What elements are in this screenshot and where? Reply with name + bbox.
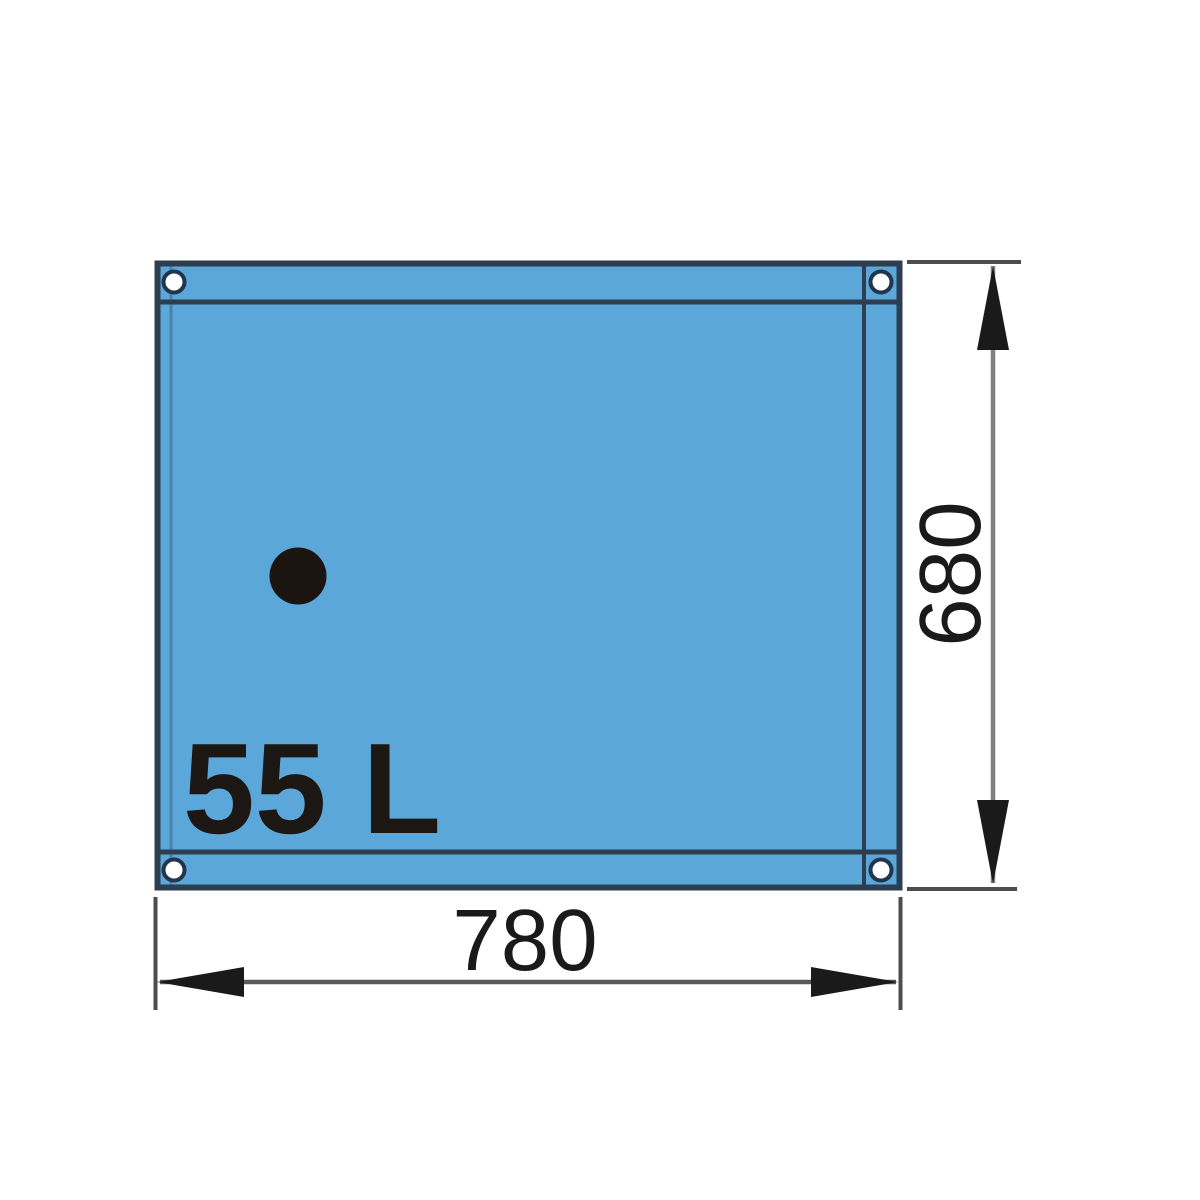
svg-text:680: 680 — [902, 501, 999, 646]
svg-text:780: 780 — [452, 892, 597, 989]
svg-text:55 L: 55 L — [183, 717, 441, 861]
